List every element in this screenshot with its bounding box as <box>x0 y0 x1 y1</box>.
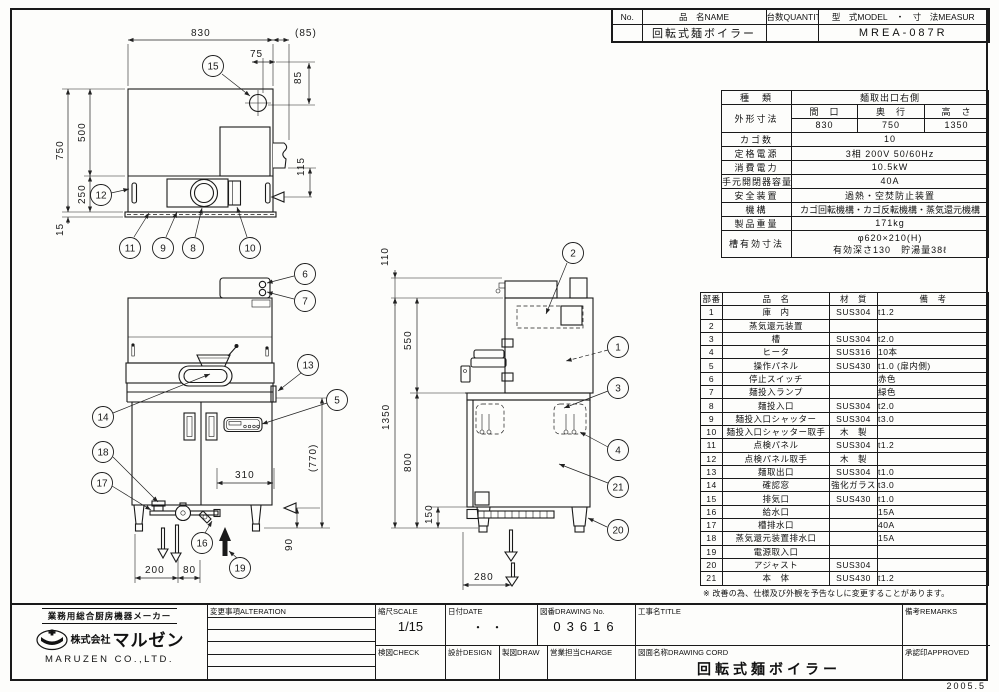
svg-text:14: 14 <box>97 413 109 424</box>
table-row: 2蒸気還元装置 <box>701 319 989 332</box>
right-pin <box>266 349 269 356</box>
svg-text:6: 6 <box>302 270 308 281</box>
dim-front-200: 200 <box>145 565 165 576</box>
dim-side-110: 110 <box>380 247 391 266</box>
spec-outer-dim-label: 外形寸法 <box>722 105 792 133</box>
company-brand: マルゼン <box>113 626 185 651</box>
quantity-value <box>766 24 818 42</box>
part-name: 停止スイッチ <box>723 372 830 385</box>
spec-basket-value: 10 <box>792 132 989 146</box>
part-remark: 40A <box>878 519 989 532</box>
part-remark: t1.2 <box>878 439 989 452</box>
spec-table: 種 類 麺取出口右側 外形寸法 間 口 奥 行 高 さ 830 750 1350… <box>721 90 989 258</box>
table-row: 13麺取出口SUS304t1.0 <box>701 465 989 478</box>
company-prefix: 株式会社 <box>71 631 111 646</box>
drawing-number-value: 03616 <box>538 619 635 634</box>
part-no: 1 <box>701 306 723 319</box>
table-row: 17槽排水口40A <box>701 519 989 532</box>
part-name: 庫 内 <box>723 306 830 319</box>
dim-side-1350: 1350 <box>381 404 392 430</box>
part-name: 麺投入ランプ <box>723 386 830 399</box>
basket <box>197 344 239 368</box>
dim-plan-750: 750 <box>55 140 66 160</box>
shutter-handle-plan <box>229 181 241 205</box>
callout-10: 10 <box>240 238 261 259</box>
approved-label: 承認印APPROVED <box>903 646 990 658</box>
exhaust-duct <box>570 278 587 298</box>
svg-text:10: 10 <box>244 244 256 255</box>
remarks-cell: 備考REMARKS <box>902 605 990 646</box>
part-name: 本 体 <box>723 572 830 585</box>
spec-safety-value: 過熱・空焚防止装置 <box>792 188 989 202</box>
part-remark: 15A <box>878 505 989 518</box>
part-remark: t2.0 <box>878 399 989 412</box>
part-no: 7 <box>701 386 723 399</box>
part-remark: t1.2 <box>878 572 989 585</box>
check-label: 検図CHECK <box>376 646 445 658</box>
svg-text:7: 7 <box>302 297 308 308</box>
svg-text:11: 11 <box>125 244 136 255</box>
right-slot <box>266 183 271 203</box>
table-row: 16給水口15A <box>701 505 989 518</box>
noodle-outlet-tab <box>273 143 287 168</box>
maruzen-logo-icon <box>35 627 69 651</box>
part-no: 2 <box>701 319 723 332</box>
spec-consumption-label: 消費電力 <box>722 160 792 174</box>
callout-6: 6 <box>295 264 316 285</box>
part-no: 13 <box>701 465 723 478</box>
part-no: 8 <box>701 399 723 412</box>
table-row: 9麺投入口シャッターSUS304t3.0 <box>701 412 989 425</box>
table-row: 6停止スイッチ赤色 <box>701 372 989 385</box>
svg-text:19: 19 <box>234 564 246 575</box>
title-block: 業務用総合厨房機器メーカー 株式会社 マルゼン MARUZEN CO.,LTD.… <box>10 603 988 681</box>
part-no: 17 <box>701 519 723 532</box>
spec-width-value: 830 <box>792 119 858 133</box>
drain-flow-arrows <box>158 525 181 562</box>
scale-label: 縮尺SCALE <box>376 605 445 617</box>
part-remark: 緑色 <box>878 386 989 399</box>
part-material <box>830 386 878 399</box>
quantity-label: 台数QUANTITY <box>766 9 818 24</box>
table-row: 3槽SUS304t2.0 <box>701 332 989 345</box>
part-no: 11 <box>701 439 723 452</box>
remarks-label: 備考REMARKS <box>903 605 990 617</box>
title-header-table: No. 品 名NAME 台数QUANTITY 型 式MODEL ・ 寸 法MEA… <box>611 8 990 43</box>
spec-width-label: 間 口 <box>792 105 858 119</box>
svg-text:17: 17 <box>96 479 108 490</box>
part-material: SUS304 <box>830 558 878 571</box>
left-slot <box>132 183 137 203</box>
part-material: SUS304 <box>830 465 878 478</box>
part-material: SUS430 <box>830 572 878 585</box>
svg-text:1: 1 <box>615 343 621 354</box>
callout-7: 7 <box>295 291 316 312</box>
dim-side-800: 800 <box>403 452 414 472</box>
table-row: 8麺投入口SUS304t2.0 <box>701 399 989 412</box>
table-row: 18蒸気還元装置排水口15A <box>701 532 989 545</box>
table-row: 5操作パネルSUS430t1.0 (扉内側) <box>701 359 989 372</box>
svg-text:2: 2 <box>570 249 576 260</box>
part-material <box>830 372 878 385</box>
part-remark <box>878 452 989 465</box>
svg-text:16: 16 <box>196 539 208 550</box>
spec-power-value: 3相 200V 50/60Hz <box>792 146 989 160</box>
basket-lift-dashed <box>476 404 586 434</box>
part-name: 麺投入口シャッター <box>723 412 830 425</box>
flex-hose <box>467 510 554 519</box>
part-material: SUS430 <box>830 359 878 372</box>
maker-block: 業務用総合厨房機器メーカー 株式会社 マルゼン MARUZEN CO.,LTD. <box>12 605 207 679</box>
spec-tank-label: 槽有効寸法 <box>722 230 792 257</box>
part-no: 12 <box>701 452 723 465</box>
charge-label: 営業担当CHARGE <box>548 646 635 658</box>
svg-text:13: 13 <box>302 361 314 372</box>
spec-breaker-value: 40A <box>792 174 989 188</box>
callout-17: 17 <box>92 473 113 494</box>
svg-text:3: 3 <box>615 384 621 395</box>
alteration-row <box>208 655 375 667</box>
dim-plan-75: 75 <box>250 49 263 60</box>
callout-3: 3 <box>608 378 629 399</box>
part-name: 給水口 <box>723 505 830 518</box>
date-stamp: 2005.5 <box>928 681 986 691</box>
design-label: 設計DESIGN <box>446 646 499 658</box>
callout-13: 13 <box>298 355 319 376</box>
dim-plan-115: 115 <box>296 157 307 176</box>
spec-mechanism-value: カゴ回転機構・カゴ反転機構・蒸気還元機構 <box>792 202 989 216</box>
part-material: SUS316 <box>830 346 878 359</box>
spec-power-label: 定格電源 <box>722 146 792 160</box>
part-name: 操作パネル <box>723 359 830 372</box>
parts-table-rows: 1庫 内SUS304t1.22蒸気還元装置3槽SUS304t2.04ヒータSUS… <box>701 306 989 585</box>
part-no: 10 <box>701 425 723 438</box>
model-label: 型 式MODEL ・ 寸 法MEASUR <box>818 9 989 24</box>
part-remark <box>878 425 989 438</box>
callout-11: 11 <box>120 238 141 259</box>
company-english-name: MARUZEN CO.,LTD. <box>12 654 207 665</box>
part-name: 点検パネル取手 <box>723 452 830 465</box>
left-pin <box>132 346 135 356</box>
part-name: 槽 <box>723 332 830 345</box>
cabinet-side <box>467 400 590 507</box>
callout-2: 2 <box>563 243 584 264</box>
dim-side-150: 150 <box>424 504 435 524</box>
dim-side-280: 280 <box>474 572 494 583</box>
spec-tank-value-line2: 有効深さ130 貯湯量38ℓ <box>792 244 988 256</box>
table-row: 4ヒータSUS31610本 <box>701 346 989 359</box>
table-row: 21本 体SUS430t1.2 <box>701 572 989 585</box>
callout-21: 21 <box>608 477 629 498</box>
power-entry-arrow <box>219 527 231 556</box>
callout-9: 9 <box>153 238 174 259</box>
part-remark <box>878 319 989 332</box>
part-material: 木 製 <box>830 452 878 465</box>
svg-text:15: 15 <box>207 62 219 73</box>
part-name: 蒸気還元装置排水口 <box>723 532 830 545</box>
inlet-mechanism-side <box>461 350 506 382</box>
design-cell: 設計DESIGN <box>445 646 499 679</box>
part-remark: t2.0 <box>878 332 989 345</box>
stop-switch <box>259 281 265 287</box>
drawing-number-label: 図番DRAWING No. <box>538 605 635 617</box>
table-row: 10麺投入口シャッター取手木 製 <box>701 425 989 438</box>
spec-safety-label: 安全装置 <box>722 188 792 202</box>
part-remark: 15A <box>878 532 989 545</box>
draw-cell: 製図DRAW <box>499 646 547 679</box>
part-no: 4 <box>701 346 723 359</box>
dim-plan-85: 85 <box>293 71 304 84</box>
dim-side-550: 550 <box>403 330 414 350</box>
part-remark: 10本 <box>878 346 989 359</box>
steam-unit-top <box>505 281 557 298</box>
front-legs <box>134 505 261 531</box>
date-label: 日付DATE <box>446 605 537 617</box>
table-row: 19電源取入口 <box>701 545 989 558</box>
spec-weight-value: 171kg <box>792 216 989 230</box>
part-material: SUS430 <box>830 492 878 505</box>
maker-tagline: 業務用総合厨房機器メーカー <box>42 608 178 624</box>
callout-18: 18 <box>93 442 114 463</box>
dim-plan-15: 15 <box>55 223 66 236</box>
no-value <box>612 24 642 42</box>
spec-height-label: 高 さ <box>925 105 989 119</box>
dim-front-90: 90 <box>284 538 295 551</box>
table-row: 20アジャストSUS304 <box>701 558 989 571</box>
parts-note: ※ 改善の為、仕様及び外観を予告なしに変更することがあります。 <box>703 588 991 599</box>
drawing-sheet: 830 (85) 75 85 115 750 500 250 <box>0 0 999 692</box>
part-name: アジャスト <box>723 558 830 571</box>
part-material <box>830 505 878 518</box>
svg-text:12: 12 <box>95 191 107 202</box>
part-material: 木 製 <box>830 425 878 438</box>
callout-12: 12 <box>91 185 112 206</box>
exhaust-port-plan <box>245 90 271 116</box>
callout-20: 20 <box>608 520 629 541</box>
spec-basket-label: カゴ数 <box>722 132 792 146</box>
part-no: 5 <box>701 359 723 372</box>
parts-header-no: 部番 <box>701 293 723 306</box>
spec-kind-label: 種 類 <box>722 91 792 105</box>
part-remark: t1.0 (扉内側) <box>878 359 989 372</box>
part-no: 21 <box>701 572 723 585</box>
dim-front-770: (770) <box>308 444 319 472</box>
plan-view: 830 (85) 75 85 115 750 500 250 <box>55 28 317 259</box>
svg-text:9: 9 <box>160 244 166 255</box>
part-name: 麺取出口 <box>723 465 830 478</box>
part-name: 槽排水口 <box>723 519 830 532</box>
alteration-row <box>208 618 375 630</box>
part-remark: t3.0 <box>878 412 989 425</box>
part-no: 18 <box>701 532 723 545</box>
check-cell: 検図CHECK <box>375 646 445 679</box>
charge-cell: 営業担当CHARGE <box>547 646 635 679</box>
callout-5: 5 <box>327 390 348 411</box>
spec-kind-value: 麺取出口右側 <box>792 91 989 105</box>
drawing-number-cell: 図番DRAWING No. 03616 <box>537 605 635 646</box>
dim-front-80: 80 <box>183 565 196 576</box>
part-remark <box>878 558 989 571</box>
dim-plan-830: 830 <box>191 28 211 39</box>
callout-4: 4 <box>608 440 629 461</box>
table-row: 12点検パネル取手木 製 <box>701 452 989 465</box>
part-no: 9 <box>701 412 723 425</box>
spec-depth-label: 奥 行 <box>858 105 925 119</box>
part-name: 電源取入口 <box>723 545 830 558</box>
dim-plan-500: 500 <box>77 122 88 142</box>
draw-label: 製図DRAW <box>500 646 547 658</box>
model-value: MREA-087R <box>818 24 989 42</box>
spec-depth-value: 750 <box>858 119 925 133</box>
spec-tank-value-line1: φ620×210(H) <box>792 232 988 244</box>
callout-19: 19 <box>230 558 251 579</box>
svg-text:5: 5 <box>334 396 340 407</box>
part-no: 19 <box>701 545 723 558</box>
part-material <box>830 545 878 558</box>
part-material <box>830 319 878 332</box>
part-material: SUS304 <box>830 306 878 319</box>
date-cell: 日付DATE ・・ <box>445 605 537 646</box>
callout-15: 15 <box>203 56 224 77</box>
part-no: 6 <box>701 372 723 385</box>
table-row: 14確認窓強化ガラスt3.0 <box>701 479 989 492</box>
part-remark: t1.0 <box>878 465 989 478</box>
callout-8: 8 <box>183 238 204 259</box>
part-remark: t1.0 <box>878 492 989 505</box>
svg-text:8: 8 <box>190 244 196 255</box>
spec-height-value: 1350 <box>925 119 989 133</box>
svg-text:18: 18 <box>97 448 109 459</box>
callout-16: 16 <box>192 533 213 554</box>
spec-weight-label: 製品重量 <box>722 216 792 230</box>
front-view: 310 (770) 90 200 80 6 7 13 5 14 <box>92 264 348 584</box>
side-view: 110 1350 550 800 150 280 2 1 3 4 2 <box>380 243 629 591</box>
part-no: 20 <box>701 558 723 571</box>
spec-consumption-value: 10.5kW <box>792 160 989 174</box>
dim-plan-85-offset: (85) <box>295 28 317 39</box>
part-remark <box>878 545 989 558</box>
callout-1: 1 <box>608 337 629 358</box>
inspection-panel-plan <box>167 179 228 207</box>
date-value: ・・ <box>446 619 537 635</box>
dim-plan-250: 250 <box>77 184 88 204</box>
part-name: 確認窓 <box>723 479 830 492</box>
door-handle-left <box>184 413 195 440</box>
dim-front-310: 310 <box>235 470 255 481</box>
parts-table: 部番 品 名 材 質 備 考 1庫 内SUS304t1.22蒸気還元装置3槽SU… <box>700 292 989 586</box>
upper-body-side <box>505 298 593 393</box>
table-row: 1庫 内SUS304t1.2 <box>701 306 989 319</box>
drain-plumbing <box>150 501 220 523</box>
part-name: ヒータ <box>723 346 830 359</box>
part-material <box>830 532 878 545</box>
job-title-label: 工事名TITLE <box>636 605 902 617</box>
part-no: 15 <box>701 492 723 505</box>
part-name: 麺投入口 <box>723 399 830 412</box>
drawing-name-cell: 図面名称DRAWING CORD 回転式麺ボイラー <box>635 646 902 679</box>
spec-breaker-label: 手元開閉器容量 <box>722 174 792 188</box>
noodle-lamp <box>259 289 265 295</box>
product-name-value: 回転式麺ボイラー <box>642 24 766 42</box>
svg-text:21: 21 <box>612 483 624 494</box>
part-name: 蒸気還元装置 <box>723 319 830 332</box>
part-material: SUS304 <box>830 399 878 412</box>
part-remark: t3.0 <box>878 479 989 492</box>
scale-value: 1/15 <box>376 619 445 634</box>
svg-text:4: 4 <box>615 446 621 457</box>
noodle-inlet-plan <box>191 180 218 207</box>
table-row: 15排気口SUS430t1.0 <box>701 492 989 505</box>
part-no: 3 <box>701 332 723 345</box>
alteration-column: 変更事項ALTERATION <box>207 605 375 679</box>
parts-header-material: 材 質 <box>830 293 878 306</box>
drawing-name-value: 回転式麺ボイラー <box>636 659 902 679</box>
part-material: 強化ガラス <box>830 479 878 492</box>
alteration-row <box>208 642 375 654</box>
callout-14: 14 <box>93 407 114 428</box>
part-material: SUS304 <box>830 332 878 345</box>
part-no: 16 <box>701 505 723 518</box>
alteration-row <box>208 667 375 679</box>
part-material <box>830 519 878 532</box>
part-material: SUS304 <box>830 412 878 425</box>
door-handle-right <box>206 413 217 440</box>
approved-cell: 承認印APPROVED <box>902 646 990 679</box>
svg-text:20: 20 <box>612 526 624 537</box>
part-material: SUS304 <box>830 439 878 452</box>
part-name: 点検パネル <box>723 439 830 452</box>
alteration-row <box>208 630 375 642</box>
part-remark: t1.2 <box>878 306 989 319</box>
spec-tank-value: φ620×210(H) 有効深さ130 貯湯量38ℓ <box>792 230 989 257</box>
spec-mechanism-label: 機構 <box>722 202 792 216</box>
table-row: 7麺投入ランプ緑色 <box>701 386 989 399</box>
parts-header-remark: 備 考 <box>878 293 989 306</box>
table-row: 11点検パネルSUS304t1.2 <box>701 439 989 452</box>
part-remark: 赤色 <box>878 372 989 385</box>
flow-arrow-left <box>272 192 284 202</box>
part-no: 14 <box>701 479 723 492</box>
operation-panel <box>224 418 262 432</box>
scale-cell: 縮尺SCALE 1/15 <box>375 605 445 646</box>
job-title-cell: 工事名TITLE <box>635 605 902 646</box>
part-name: 麺投入口シャッター取手 <box>723 425 830 438</box>
parts-header-name: 品 名 <box>723 293 830 306</box>
bottom-flow-arrows <box>505 530 518 586</box>
part-name: 排気口 <box>723 492 830 505</box>
alteration-label: 変更事項ALTERATION <box>208 605 375 618</box>
water-inlet-arrow <box>284 503 296 513</box>
product-name-label: 品 名NAME <box>642 9 766 24</box>
drawing-name-label: 図面名称DRAWING CORD <box>636 646 902 658</box>
no-label: No. <box>612 9 642 24</box>
